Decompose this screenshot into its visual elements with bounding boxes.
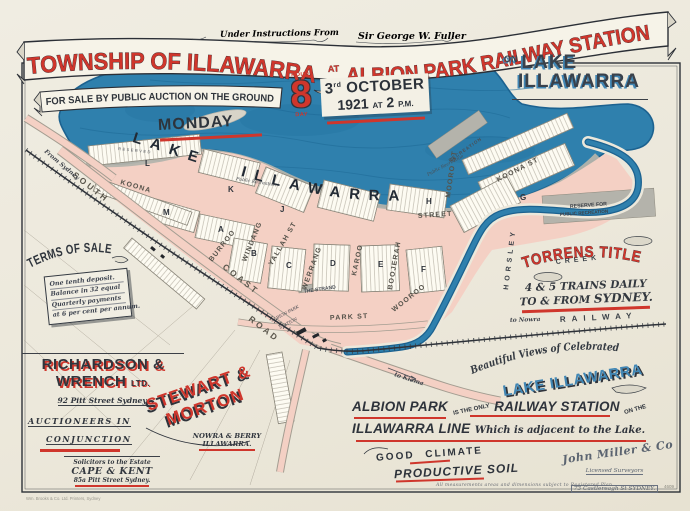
ap-underline-3	[356, 440, 646, 442]
trains-block: 4 & 5 TRAINS DAILY TO & FROM SYDNEY.	[516, 278, 657, 309]
date-year: 1921	[337, 95, 369, 113]
terms-of-sale-box: One tenth deposit. Balance in 32 equal Q…	[44, 268, 133, 325]
torrens-title-text: TORRENS TITLE	[520, 244, 643, 272]
ap-claim-5: ILLAWARRA LINE	[352, 421, 470, 436]
title-at-text: AT	[328, 63, 340, 74]
date-time: 2	[386, 94, 395, 110]
on-lake-underline	[512, 99, 648, 100]
trains-line2: TO & FROM	[519, 294, 590, 308]
torrens-scroll-right	[624, 237, 652, 246]
ribbon-end-right	[668, 12, 676, 60]
section-b: B	[251, 249, 257, 258]
section-g: G	[520, 193, 526, 202]
ap-underline-2	[470, 415, 610, 417]
rw-top-rule	[22, 353, 184, 354]
printer-imprint: Wm. Brooks & Co. Ltd. Printers, Sydney	[26, 496, 100, 501]
ap-claim-4: ON THE	[624, 404, 647, 416]
date-ordinal: rd	[333, 82, 341, 89]
ap-claim-6: Which is adjacent to the Lake.	[475, 425, 645, 436]
sm-sub-line2: ILLAWARRA.	[192, 440, 262, 448]
eight-day-label: DAY	[285, 111, 319, 118]
date-pm: P.M.	[398, 99, 414, 109]
ap-underline-1	[354, 417, 446, 419]
solicitors-block: Solicitors to the Estate CAPE & KENT 85a…	[64, 456, 160, 487]
solicitors-name: CAPE & KENT	[64, 466, 160, 477]
fine-print: All measurements areas and dimensions su…	[436, 483, 614, 488]
sm-red-underline	[199, 449, 255, 451]
section-a: A	[218, 225, 224, 234]
trains-sydney: SYDNEY.	[594, 290, 653, 306]
rw-address: 92 Pitt Street Sydney.	[58, 396, 149, 406]
ap-claim-3: RAILWAY STATION	[494, 399, 620, 414]
section-k: K	[228, 185, 234, 194]
date-at: AT	[372, 101, 383, 111]
views-flourish	[612, 385, 646, 393]
section-h: H	[426, 197, 432, 206]
surveyor-role: Licensed Surveyors	[586, 468, 644, 475]
section-l: L	[145, 159, 150, 168]
eight-numeral: 8	[283, 77, 318, 112]
instructions-name: Sir George W. Fuller	[358, 31, 466, 42]
on-lake-illawarra-title: ONLAKE ILLAWARRA	[504, 52, 640, 93]
rw-red-underline	[40, 449, 120, 452]
terms-heading: TERMS OF SALE	[25, 240, 113, 271]
eight-hour-day-badge: HOUR 8 DAY	[283, 71, 319, 118]
rw-name-line2: WRENCH	[56, 373, 127, 390]
rw-name-line1: RICHARDSON &	[18, 356, 188, 373]
instructions-prefix: Under Instructions From	[220, 28, 339, 40]
solicitors-red-underline	[75, 485, 149, 487]
solicitors-intro: Solicitors to the Estate	[64, 459, 160, 466]
section-d: D	[330, 259, 336, 268]
direction-to-nowra: to Nowra	[510, 316, 541, 324]
albion-park-claim-line2: ILLAWARRA LINE Which is adjacent to the …	[352, 420, 645, 438]
lake-word: LAKE	[522, 52, 578, 73]
solicitors-address: 85a Pitt Street Sydney.	[64, 477, 160, 484]
section-e: E	[378, 260, 384, 269]
sm-sub-line1: NOWRA & BERRY	[192, 432, 262, 440]
auction-date-panel: 3rd OCTOBER 1921 AT 2 P.M.	[320, 73, 430, 117]
auction-poster: LAKE ILLAWARRA SOUTH COAST ROAD KOONA KO…	[0, 0, 690, 511]
section-m: M	[163, 208, 170, 217]
section-j: J	[280, 205, 284, 214]
railway-label: RAILWAY	[560, 311, 638, 324]
rw-role-line1: AUCTIONEERS IN	[28, 416, 131, 427]
rw-ltd: LTD.	[131, 379, 150, 388]
ap-claim-1: ALBION PARK	[352, 399, 448, 414]
stewart-morton-sub: NOWRA & BERRY ILLAWARRA.	[192, 432, 262, 451]
terms-flourish	[112, 256, 128, 262]
section-c: C	[286, 261, 292, 270]
illawarra-word: ILLAWARRA	[518, 71, 640, 93]
plan-number: 4609	[664, 484, 674, 489]
albion-park-claim-line1: ALBION PARK IS THE ONLY RAILWAY STATION …	[352, 398, 647, 416]
section-f: F	[421, 265, 426, 274]
on-word: ON	[504, 54, 518, 64]
rw-role-line2: CONJUNCTION	[46, 434, 132, 445]
